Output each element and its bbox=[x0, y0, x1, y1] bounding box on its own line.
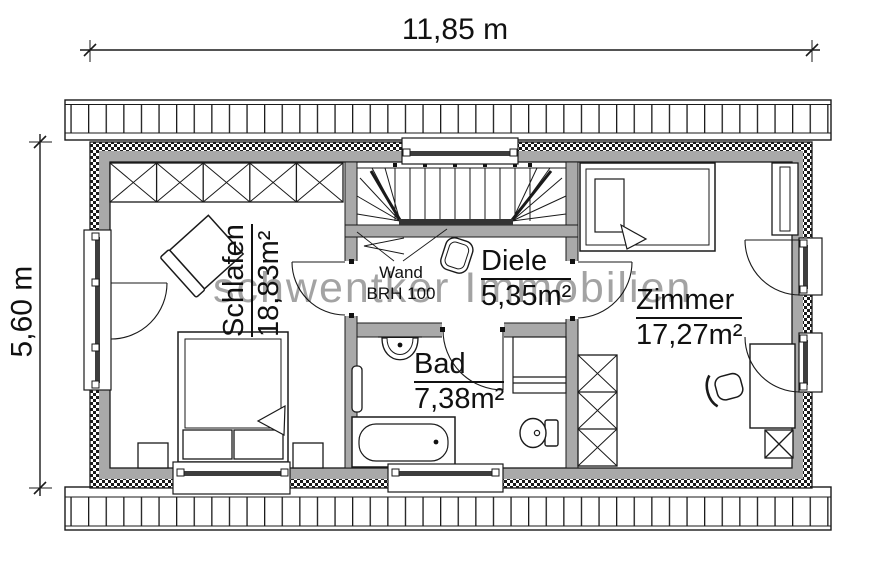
desk-chair bbox=[704, 368, 746, 408]
dimension-width-label: 11,85 m bbox=[360, 14, 550, 45]
stairs-arrow bbox=[364, 238, 404, 254]
window-right-lower bbox=[799, 333, 822, 392]
double-bed bbox=[178, 332, 288, 462]
bathtub bbox=[352, 417, 455, 467]
wardrobe-zimmer bbox=[578, 355, 617, 466]
roof-overhang-top bbox=[65, 100, 831, 140]
floor-plan: 11,85 m 5,60 m Schlafen 18,83m² Diele 5,… bbox=[0, 0, 893, 574]
watermark: schwentker Immobilien bbox=[213, 264, 692, 313]
nightstand-right bbox=[293, 443, 323, 468]
window-right-upper bbox=[799, 238, 822, 295]
storage-box bbox=[765, 430, 793, 458]
room-area-zimmer: 17,27m² bbox=[636, 319, 742, 350]
desk bbox=[750, 344, 795, 428]
room-name-bad: Bad bbox=[414, 349, 504, 383]
window-top bbox=[402, 138, 518, 164]
bath-cabinet bbox=[513, 337, 566, 393]
single-bed bbox=[580, 163, 715, 251]
toilet bbox=[520, 419, 558, 448]
staircase bbox=[357, 163, 566, 225]
window-bottom-bad bbox=[388, 464, 503, 492]
room-label-bad: Bad 7,38m² bbox=[414, 349, 504, 414]
window-left-balcony bbox=[84, 230, 111, 390]
dimension-height-label: 5,60 m bbox=[6, 256, 37, 368]
tall-cabinet bbox=[772, 163, 798, 235]
balcony-door-swing bbox=[111, 283, 167, 339]
room-area-bad: 7,38m² bbox=[414, 383, 504, 414]
parapet-wall-brh100 bbox=[345, 225, 578, 237]
window-bottom-schlafen bbox=[173, 462, 290, 494]
radiator bbox=[352, 366, 362, 412]
nightstand-left bbox=[138, 443, 168, 468]
